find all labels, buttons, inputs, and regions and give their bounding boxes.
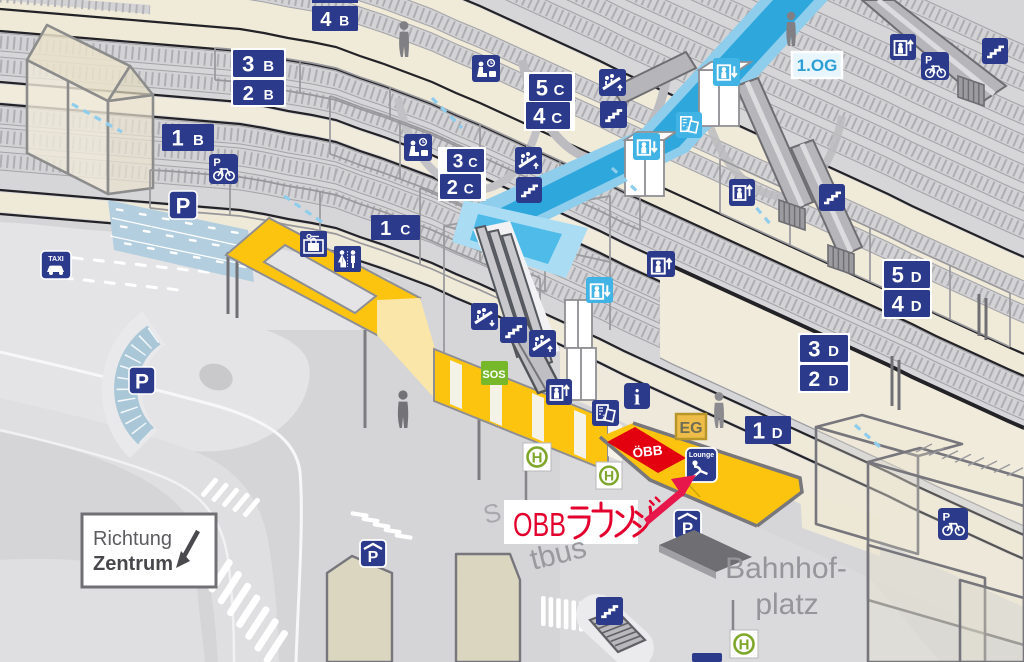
svg-text:1: 1 [752, 417, 765, 443]
svg-text:Bahnhof-: Bahnhof- [725, 552, 847, 585]
svg-text:D: D [911, 298, 922, 315]
svg-text:SOS: SOS [482, 369, 505, 381]
svg-text:B: B [263, 58, 274, 75]
svg-text:P: P [176, 193, 191, 218]
svg-text:i: i [634, 384, 640, 409]
svg-text:platz: platz [755, 588, 818, 621]
svg-text:3: 3 [453, 151, 464, 172]
svg-text:2: 2 [243, 83, 254, 105]
svg-text:TAXI: TAXI [48, 256, 63, 263]
svg-text:D: D [828, 343, 839, 360]
svg-text:1.OG: 1.OG [797, 56, 838, 75]
svg-text:Zentrum: Zentrum [93, 553, 173, 575]
svg-text:P: P [925, 55, 932, 67]
svg-text:D: D [772, 425, 783, 442]
svg-text:P: P [942, 511, 950, 523]
svg-text:Lounge: Lounge [689, 452, 714, 459]
svg-text:C: C [464, 181, 474, 197]
svg-text:2: 2 [809, 368, 821, 391]
svg-text:P: P [213, 157, 220, 169]
svg-text:5: 5 [892, 263, 904, 288]
svg-text:Richtung: Richtung [93, 528, 172, 550]
svg-text:4: 4 [892, 292, 905, 317]
svg-text:P: P [135, 371, 149, 394]
svg-text:B: B [339, 13, 349, 29]
svg-text:C: C [400, 222, 410, 238]
svg-text:EG: EG [679, 420, 702, 437]
svg-text:H: H [532, 450, 543, 467]
svg-text:3: 3 [242, 52, 254, 77]
svg-text:D: D [829, 372, 839, 388]
svg-text:D: D [911, 269, 922, 286]
svg-text:2: 2 [447, 177, 458, 199]
svg-text:B: B [193, 132, 204, 149]
svg-text:H: H [739, 637, 750, 654]
svg-text:C: C [554, 82, 565, 99]
svg-text:2: 2 [686, 126, 689, 132]
svg-text:C: C [468, 155, 478, 170]
svg-text:P: P [368, 549, 379, 566]
svg-text:ÖBB: ÖBB [632, 442, 664, 460]
svg-text:B: B [264, 87, 274, 103]
svg-text:4: 4 [533, 104, 546, 129]
svg-text:4: 4 [320, 9, 332, 31]
svg-text:5: 5 [536, 76, 548, 101]
svg-text:H: H [604, 468, 614, 484]
svg-text:C: C [551, 110, 562, 127]
svg-text:3: 3 [808, 337, 820, 362]
svg-text:1: 1 [171, 126, 183, 151]
svg-text:1: 1 [380, 218, 391, 240]
